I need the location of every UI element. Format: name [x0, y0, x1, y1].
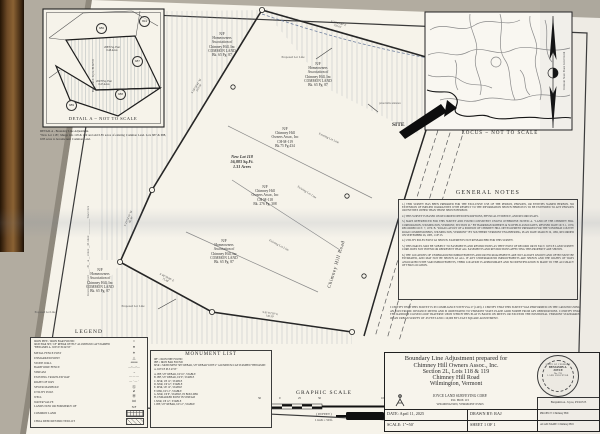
legend-item: RIGHT OF WAY— · — ·: [32, 381, 146, 384]
detail-lot-687: 687: [132, 56, 143, 67]
stream-icon: →: [124, 371, 144, 375]
detail-lot-686: 686: [96, 23, 107, 34]
water-valve-icon: ⋈: [124, 400, 144, 404]
divider: [467, 409, 468, 431]
legend-item: EXISTING TRAVELED WAY— — —: [32, 376, 146, 379]
surveyor-tripod-icon: [395, 394, 405, 407]
proposed-lot-line-label-top: Proposed Lot Line: [270, 55, 316, 59]
site-label: SITE: [392, 122, 405, 128]
legend-label: CHOA DEED RESTRICTED LOT: [34, 420, 126, 423]
owner-label-common-ne: N/F Homeowners Association of Chimney Hi…: [283, 62, 353, 87]
detail-area-687: 20876 Sq. Feet 0.48 Acres: [88, 46, 136, 52]
monument-abbrev: MSR = MONUMENT SET REBAR, 5/8" REBAR WIT…: [154, 364, 268, 370]
detail-lot-694: 694: [139, 16, 150, 27]
title-block: Boundary Line Adjustment prepared for Ch…: [384, 352, 600, 432]
general-note: 6.) THE LOCATIONS OF UNDERGROUND IMPROVE…: [402, 254, 574, 268]
legend-item: COMMON LAND: [32, 410, 146, 417]
monument-list-box: MONUMENT LIST IPF = IRON PIPE FOUND IBF …: [150, 350, 272, 428]
divider: [385, 420, 599, 421]
iron-bar-set-icon: ●: [124, 346, 144, 350]
legend-label: BARB WIRE FENCE: [34, 366, 124, 369]
general-note: 3.) MAPS REFERENCED FOR THIS SURVEY AND …: [402, 220, 574, 237]
legend-title: LEGEND: [30, 329, 148, 335]
sheet-cell: SHEET 1 OF 1: [470, 422, 536, 427]
general-notes-title: GENERAL NOTES: [398, 190, 578, 196]
detail-a-caption: DETAIL A ~ NOT TO SCALE: [46, 116, 160, 121]
deed-restricted-swatch: [126, 418, 144, 425]
seal-bottom: LAND SURVEYOR: [543, 375, 573, 377]
surveyor-certification: I CERTIFY THAT THIS SURVEY IS IN COMPLIA…: [390, 306, 580, 321]
date-cell: DATE: April 11, 2025: [387, 411, 465, 416]
proposed-lot-line-label-edge: Proposed Lot Line: [22, 311, 68, 314]
legend-label: UTILITY POLE: [34, 391, 124, 394]
legend-box: IRON PIPE / IRON BAR FOUND○ IRON BAR SET…: [30, 337, 148, 428]
plat-title-line: Wilmington, Vermont: [385, 381, 527, 387]
plat-title-line: Boundary Line Adjustment prepared for: [385, 355, 527, 362]
legend-item: UNMARKED POINT△: [32, 357, 146, 361]
legend-item: WELLⓌ: [32, 395, 146, 399]
scale-cell: SCALE: 1"=50': [387, 422, 465, 427]
monument-item: J. IBF, 5/8" REBAR, UP 12", STABLE: [154, 403, 268, 406]
legend-label: UNMARKED POINT: [34, 357, 124, 360]
scanned-survey-plat: Benjamin A. Joyce, PLS#725 Received for …: [0, 0, 600, 434]
legend-label: IRON PIPE / IRON BAR FOUND: [34, 340, 124, 343]
detail-lot-688: 688: [115, 89, 126, 100]
legend-item: IRON BAR SET, 5/8" REBAR WITH 2" ALUMINU…: [32, 344, 146, 350]
scale-tick: 0: [279, 397, 281, 401]
unmarked-point-icon: △: [124, 357, 144, 361]
legend-label: IRON BAR SET, 5/8" REBAR WITH 2" ALUMINU…: [34, 344, 124, 350]
scale-tick: 25: [298, 397, 301, 401]
legend-label: WATER VALVE: [34, 401, 124, 404]
owner-label-common-s: N/F Homeowners Association of Chimney Hi…: [189, 239, 259, 264]
legend-label: STREAM: [34, 371, 124, 374]
right-of-way-icon: — · — ·: [124, 381, 144, 384]
drawn-by-cell: DRAWN BY: RAJ: [470, 411, 536, 416]
monument-list-title: MONUMENT LIST: [154, 352, 268, 357]
divider: [537, 409, 538, 431]
divider: [385, 409, 599, 410]
new-lot-118-label: New Lot 118 56,883 Sq.Ft. 1.31 Acres: [212, 154, 272, 169]
detail-a-note: DETAIL A - Boundary Line Adjustment. "Ne…: [40, 130, 166, 141]
scale-tick: 50: [258, 397, 261, 401]
common-land-swatch: [126, 410, 144, 417]
locus-caption: LOCUS ~ NOT TO SCALE: [430, 131, 570, 136]
iron-pipe-found-icon: ○: [124, 340, 144, 344]
legend-label: RIGHT OF WAY: [34, 381, 124, 384]
owner-label-lot118: N/F Chimney Hill Owners Assoc, Inc CH-M-…: [234, 185, 296, 206]
driveway-label: paved drive entrance: [376, 102, 404, 105]
legend-item: SEWER MANHOLEⓈ: [32, 386, 146, 390]
scale-tick: 50: [318, 397, 321, 401]
title-block-titles: Boundary Line Adjustment prepared for Ch…: [385, 355, 527, 387]
traveled-way-icon: — — —: [124, 376, 144, 379]
scale-ratio: 1 inch = 50 ft.: [262, 418, 386, 422]
surveyor-seal: STATE OF VERMONT BENJAMIN A. JOYCE No. 7…: [537, 355, 579, 397]
seal-signer: Benjamin A. Joyce, PLS#725: [537, 397, 599, 409]
owner-label-common-nw: N/F Homeowners Association of Chimney Hi…: [187, 32, 257, 57]
detail-area-688: 20278 Sq. Feet 0.47 Acres: [80, 80, 128, 86]
legend-item: UTILITY POLE⌀: [32, 390, 146, 394]
legend-item: BARB WIRE FENCE—×—×—: [32, 366, 146, 369]
proposed-lot-line-label-bottom: Proposed Lot Line: [110, 304, 156, 308]
detail-lot-689: 689: [66, 100, 77, 111]
stone-wall-icon: oooooo: [124, 362, 144, 365]
general-notes-box: 1.) THIS SURVEY HAS BEEN PREPARED FOR TH…: [398, 199, 578, 300]
plat-title-line: Chimney Hill Owners Assoc., Inc.: [385, 362, 527, 369]
general-note: 2.) THIS SURVEY IS BASED ON RECORDED DEE…: [402, 215, 574, 218]
legend-label: METAL FENCE POST: [34, 352, 124, 355]
project-cell: PROJECT: Chimney Hill: [540, 412, 598, 415]
general-note: 4.) UTILITY POLES EXIST AS SHOWN. EASEME…: [402, 239, 574, 242]
legend-label: EXISTING TRAVELED WAY: [34, 376, 124, 379]
legend-label: WELL: [34, 396, 124, 399]
legend-item: CHOA DEED RESTRICTED LOT: [32, 418, 146, 425]
metal-fence-post-icon: ✶: [124, 352, 144, 356]
legend-item: LANDS NOW OR FORMERLY OFN/F: [32, 405, 146, 408]
north-arrow-label: Vermont State Plane Grid North: [563, 12, 567, 130]
legend-label: SEWER MANHOLE: [34, 386, 124, 389]
barb-wire-fence-icon: —×—×—: [124, 367, 144, 370]
scale-units: ( IN FEET ): [262, 412, 386, 416]
owner-label-common-sw: N/F Homeowners Association of Chimney Hi…: [65, 268, 135, 293]
general-note: 1.) THIS SURVEY HAS BEEN PREPARED FOR TH…: [402, 203, 574, 213]
general-note: 5.) THIS PARCEL MAY BE SUBJECT TO EASEME…: [402, 245, 574, 252]
nf-abbrev: N/F: [124, 406, 144, 409]
firm-address: WILMINGTON, VERMONT 05363: [395, 402, 525, 406]
acad-cell: ACAD NAME: Chimney Hill: [540, 423, 598, 426]
legend-label: LANDS NOW OR FORMERLY OF: [34, 405, 124, 408]
firm-block: JOYCE LAND SURVEYING CORP. P.O. BOX 115 …: [395, 394, 525, 406]
legend-label: COMMON LAND: [34, 412, 126, 415]
legend-item: METAL FENCE POST✶: [32, 352, 146, 356]
